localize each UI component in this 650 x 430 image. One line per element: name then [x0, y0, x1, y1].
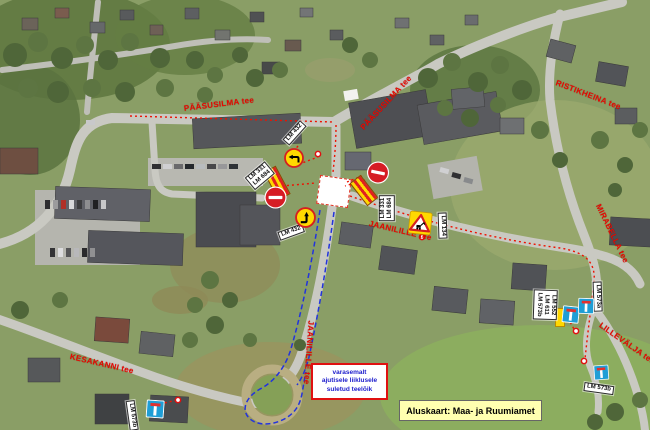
detour-arrow-sign	[284, 148, 304, 173]
note-line: ajutisele liiklusele	[313, 377, 386, 385]
sign-code: LM 552	[549, 293, 557, 317]
no-entry-sign	[264, 186, 287, 214]
dead-end-sign	[145, 399, 165, 423]
sign-code-label: LM 134	[437, 212, 447, 239]
sign-code-label: LM 331 LM 684	[379, 195, 395, 221]
detour-arrow-sign	[295, 207, 316, 233]
sign-code: LM 573b	[534, 292, 542, 316]
traffic-plan-map: LM 331 LM 684 LM 432 LM 432 LM 331 LM 68…	[0, 0, 650, 430]
sign-code: LM 573a	[594, 284, 602, 308]
sign-code: LM 331	[380, 198, 387, 218]
note-line: suletud teelõik	[313, 386, 386, 394]
dead-end-sign	[578, 298, 595, 320]
road-works-sign	[407, 210, 434, 241]
sign-code-label: LM 552 LM 611 LM 573b	[533, 289, 558, 320]
closure-note-box: varasemalt ajutisele liiklusele suletud …	[311, 363, 388, 400]
red-dotted-routes	[130, 116, 594, 404]
sign-code: LM 134	[439, 215, 447, 236]
dead-end-sign	[593, 365, 609, 386]
note-line: varasemalt	[313, 369, 386, 377]
basemap-credit: Aluskaart: Maa- ja Ruumiamet	[399, 400, 542, 421]
sign-code: LM 684	[387, 198, 394, 218]
sign-code: LM 611	[541, 293, 549, 317]
